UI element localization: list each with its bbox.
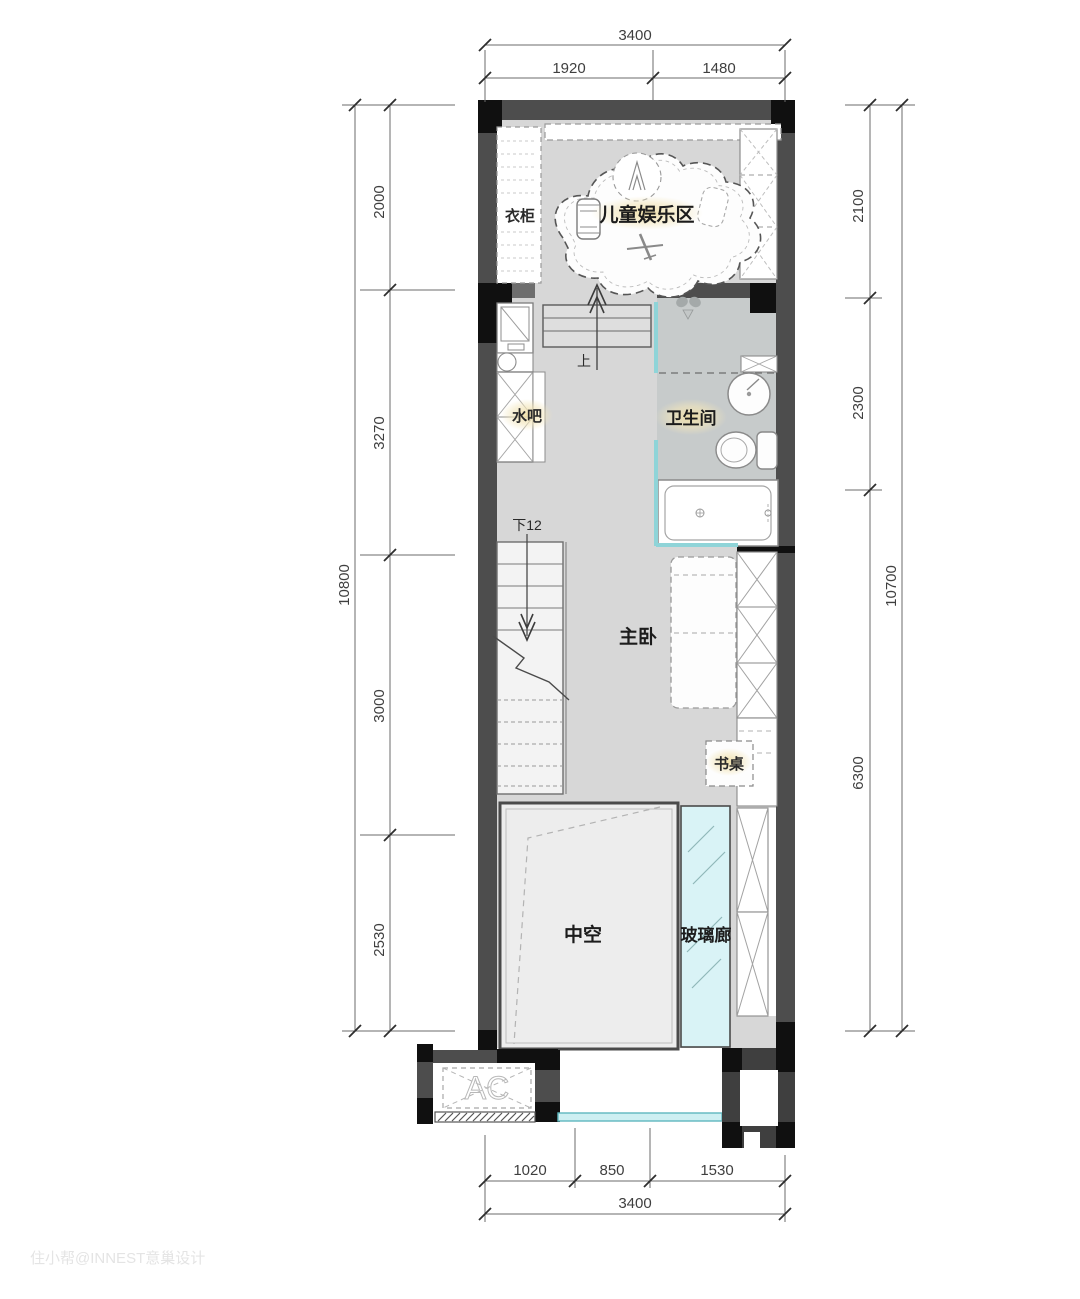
right-wall [776, 100, 795, 1048]
left-wall [478, 100, 497, 1048]
dim-bottom-seg-0: 1020 [513, 1162, 546, 1179]
dim-right-overall: 10700 [883, 565, 900, 607]
toilet [716, 432, 777, 469]
kids-play-area-label: 儿童娱乐区 [598, 203, 694, 226]
master-bedroom-label: 主卧 [619, 626, 657, 648]
glass-corridor-label: 玻璃廊 [681, 925, 732, 945]
dim-bottom-seg-1: 850 [599, 1162, 624, 1179]
bathroom-label: 卫生间 [666, 408, 717, 428]
dim-right-seg-2: 6300 [850, 756, 867, 789]
kids-wardrobe [497, 127, 541, 283]
balcony-railing [435, 1112, 535, 1122]
dim-top-seg-0: 1920 [552, 60, 585, 77]
dim-left-overall: 10800 [336, 564, 353, 606]
dim-right-seg-0: 2100 [850, 189, 867, 222]
stair-up-label: 上 [577, 353, 591, 369]
wardrobe-label: 衣柜 [505, 207, 535, 225]
bedroom-wardrobe [737, 552, 777, 718]
terrace-window [558, 1113, 722, 1121]
bathtub [658, 480, 778, 546]
corridor-wardrobe [737, 808, 776, 1016]
stair-down-label: 下12 [512, 517, 542, 533]
water-bar-label: 水吧 [512, 407, 542, 425]
teepee-toy [613, 153, 661, 201]
sink-basin [728, 373, 770, 415]
ac-balcony: AC [417, 1044, 560, 1124]
bottom-right-room [722, 1048, 795, 1148]
floor-plan-page: AC [0, 0, 1080, 1299]
desk: 书桌 [706, 741, 753, 786]
dim-top-seg-1: 1480 [702, 60, 735, 77]
ac-unit-label: AC [465, 1070, 509, 1106]
mirror-cabinet [741, 356, 777, 372]
void-label: 中空 [564, 923, 602, 946]
dim-right-seg-1: 2300 [850, 386, 867, 419]
desk-label: 书桌 [714, 755, 745, 773]
dim-bottom-seg-2: 1530 [700, 1162, 733, 1179]
bed [671, 557, 736, 708]
dim-bottom-overall: 3400 [618, 1195, 651, 1212]
dim-top-overall: 3400 [618, 27, 651, 44]
dim-left-seg-2: 3000 [371, 689, 388, 722]
floor-plan-drawing: AC [0, 0, 1080, 1299]
top-wall [478, 100, 795, 120]
dim-left-seg-1: 3270 [371, 416, 388, 449]
watermark: 住小帮@INNEST意巢设计 [30, 1249, 205, 1267]
dim-left-seg-0: 2000 [371, 185, 388, 218]
stair-down: 下12 [493, 517, 569, 794]
dim-left-seg-3: 2530 [371, 923, 388, 956]
